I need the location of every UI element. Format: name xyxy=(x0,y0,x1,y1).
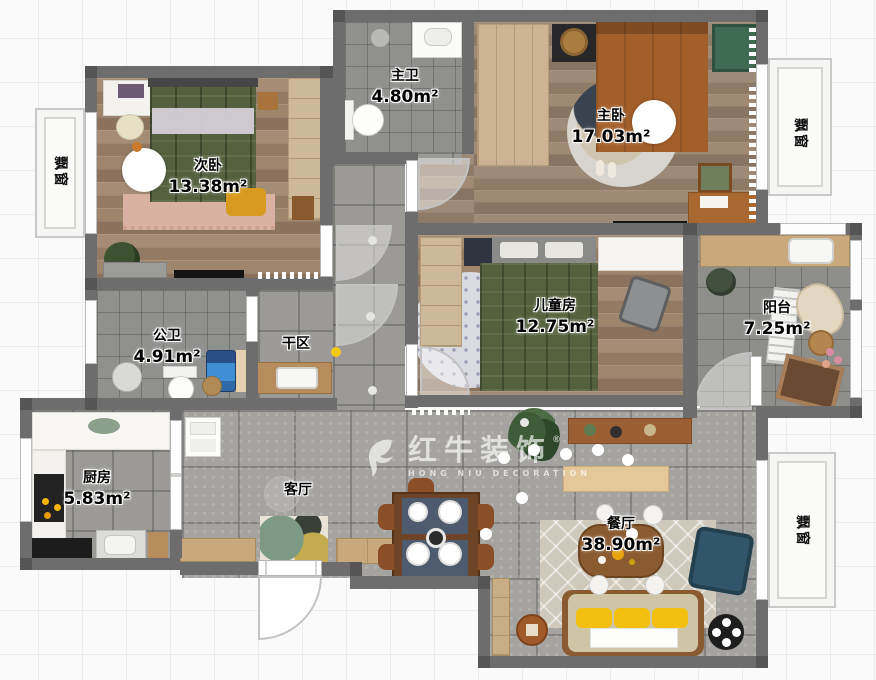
tv-console-second-bedroom xyxy=(103,262,167,278)
wall-corner xyxy=(20,558,32,570)
round-pillow xyxy=(122,148,166,192)
flame-dots xyxy=(42,498,49,505)
wall-bottom-kitchen xyxy=(20,558,180,570)
switch-dot-yellow xyxy=(331,347,341,357)
wall-top-kids xyxy=(405,223,697,235)
wall-top-second-bedroom xyxy=(85,66,345,78)
dining-chair-right-1 xyxy=(478,504,494,530)
pillow-kids-1 xyxy=(500,242,538,258)
desk-kids xyxy=(598,237,684,271)
wall-bottom-balcony-right xyxy=(756,406,862,418)
label-kitchen: 厨房5.83m² xyxy=(63,470,130,510)
wall-top-main xyxy=(333,10,768,22)
shower-head-icon xyxy=(370,28,390,48)
door-arc-entrance xyxy=(258,576,322,640)
wall-corner xyxy=(756,656,768,668)
bull-logo-icon xyxy=(362,436,400,478)
watermark: 红牛装饰® HONG NIU DECORATION xyxy=(362,436,591,478)
wall-left-master-bath xyxy=(333,10,345,164)
tv-second-bedroom xyxy=(174,270,244,278)
wall-corner xyxy=(333,10,345,22)
dresser-cloth xyxy=(700,196,728,208)
armchair-navy xyxy=(687,525,755,596)
wall-east-second-bedroom-a xyxy=(320,66,333,225)
tray-dots xyxy=(722,618,731,627)
entry-bench xyxy=(180,538,256,562)
door-leaf-kids-room xyxy=(406,344,418,396)
storage-box xyxy=(292,196,314,220)
wall-bottom-second-bedroom xyxy=(85,278,333,290)
window-balcony-right-2 xyxy=(850,310,862,398)
wall-entry-left xyxy=(180,562,258,575)
kitchen-sink xyxy=(104,535,136,555)
wall-corner xyxy=(85,398,97,410)
label-guest-bath: 公卫4.91m² xyxy=(133,328,200,368)
flower-dots xyxy=(826,348,834,356)
label-bay-window-bottom: 飘窗 xyxy=(793,515,813,547)
desk-chair xyxy=(116,114,144,140)
balcony-sink xyxy=(788,238,834,264)
wardrobe-kids xyxy=(420,237,462,347)
label-bay-window-left: 飘窗 xyxy=(51,156,71,188)
curtain-master xyxy=(749,84,756,219)
abstract-rug-living xyxy=(260,516,328,566)
plates xyxy=(408,502,428,522)
window-balcony-right-1 xyxy=(850,240,862,300)
door-leaf-guest-bath xyxy=(246,296,258,342)
wall-dining-south xyxy=(478,656,768,668)
label-dining-room: 餐厅38.90m² xyxy=(582,516,661,556)
sofa-throw-white xyxy=(590,628,678,648)
nightstand-right xyxy=(258,92,278,110)
window-left-opening xyxy=(85,112,97,234)
label-kids-room: 儿童房12.75m² xyxy=(516,298,595,338)
sink-master-bath xyxy=(424,28,452,46)
sink-dry-area xyxy=(276,367,318,389)
label-dry-area: 干区 xyxy=(282,336,310,354)
wall-corner xyxy=(350,562,362,576)
stool-cloth xyxy=(526,624,538,636)
laundry-basket xyxy=(202,376,222,396)
wall-corner xyxy=(850,223,862,235)
wall-living-south xyxy=(350,576,490,589)
label-balcony: 阳台7.25m² xyxy=(743,300,810,340)
wall-corner xyxy=(850,406,862,418)
curtain-second-bedroom xyxy=(258,272,318,279)
window-right-bottom-opening xyxy=(756,460,768,600)
wall-divider-bath-master xyxy=(462,10,474,154)
wall-corner xyxy=(683,223,697,235)
cooktop xyxy=(34,474,64,522)
label-master-bath: 主卫4.80m² xyxy=(371,68,438,108)
wall-corner xyxy=(85,66,97,78)
dining-chair-top xyxy=(408,478,434,492)
wall-corner xyxy=(85,278,97,290)
blanket-white xyxy=(152,108,254,134)
label-bay-window-right: 飘窗 xyxy=(791,118,811,150)
accent-dot xyxy=(132,142,142,152)
balcony-plant xyxy=(706,268,736,296)
wall-right-kids xyxy=(683,223,697,418)
cabinet-dining-west xyxy=(492,578,510,656)
curtain-master-top xyxy=(749,26,756,72)
wall-dining-west xyxy=(478,576,490,668)
wall-corner xyxy=(478,656,490,668)
sofa-cushions-yellow xyxy=(576,608,612,628)
label-living-room: 客厅 xyxy=(284,482,312,500)
wall-corner xyxy=(320,66,333,78)
dining-chair-right-2 xyxy=(478,544,494,570)
dining-chair-left-2 xyxy=(378,544,394,570)
chair-dresser-master xyxy=(698,163,732,193)
label-second-bedroom: 次卧13.38m² xyxy=(169,158,248,198)
wall-bottom-master-bath xyxy=(333,152,412,164)
label-master-bedroom: 主卧17.03m² xyxy=(572,108,651,148)
console-decor xyxy=(584,424,596,436)
downlight-4 xyxy=(520,418,529,427)
wall-bottom-kids xyxy=(405,395,697,407)
door-leaf-entrance xyxy=(258,560,322,576)
wall-corner xyxy=(478,576,490,589)
fridge-doors xyxy=(190,422,216,435)
wall-corner xyxy=(756,10,768,22)
window-guest-bath xyxy=(85,300,97,364)
door-leaf-balcony xyxy=(750,356,762,406)
window-kitchen xyxy=(20,438,32,522)
wall-bottom-guest-bath xyxy=(20,398,337,410)
side-cabinet-guest-bath xyxy=(236,350,246,392)
door-leaf-master-bedroom xyxy=(406,160,418,212)
round-side-table-master xyxy=(560,28,588,56)
laptop xyxy=(118,84,144,98)
wall-corner xyxy=(20,398,32,410)
dish-rack-green xyxy=(88,418,120,434)
curtain-kids xyxy=(412,409,470,415)
kitchen-wood-cab xyxy=(148,532,168,558)
wardrobe-master xyxy=(477,24,549,166)
window-balcony-top xyxy=(780,223,846,235)
slippers xyxy=(596,160,604,176)
downlight-3 xyxy=(368,386,377,395)
sliding-door-kitchen xyxy=(170,420,182,530)
door-leaf-second-bedroom xyxy=(320,225,333,277)
toilet-bowl-master-bath xyxy=(352,104,384,136)
floorplan-canvas: 主卫4.80m² 主卧17.03m² 次卧13.38m² 儿童房12.75m² … xyxy=(0,0,876,680)
dining-chair-left-1 xyxy=(378,504,394,530)
window-right-top-opening xyxy=(756,64,768,190)
center-bowl xyxy=(426,528,446,548)
pillow-kids-2 xyxy=(545,242,583,258)
